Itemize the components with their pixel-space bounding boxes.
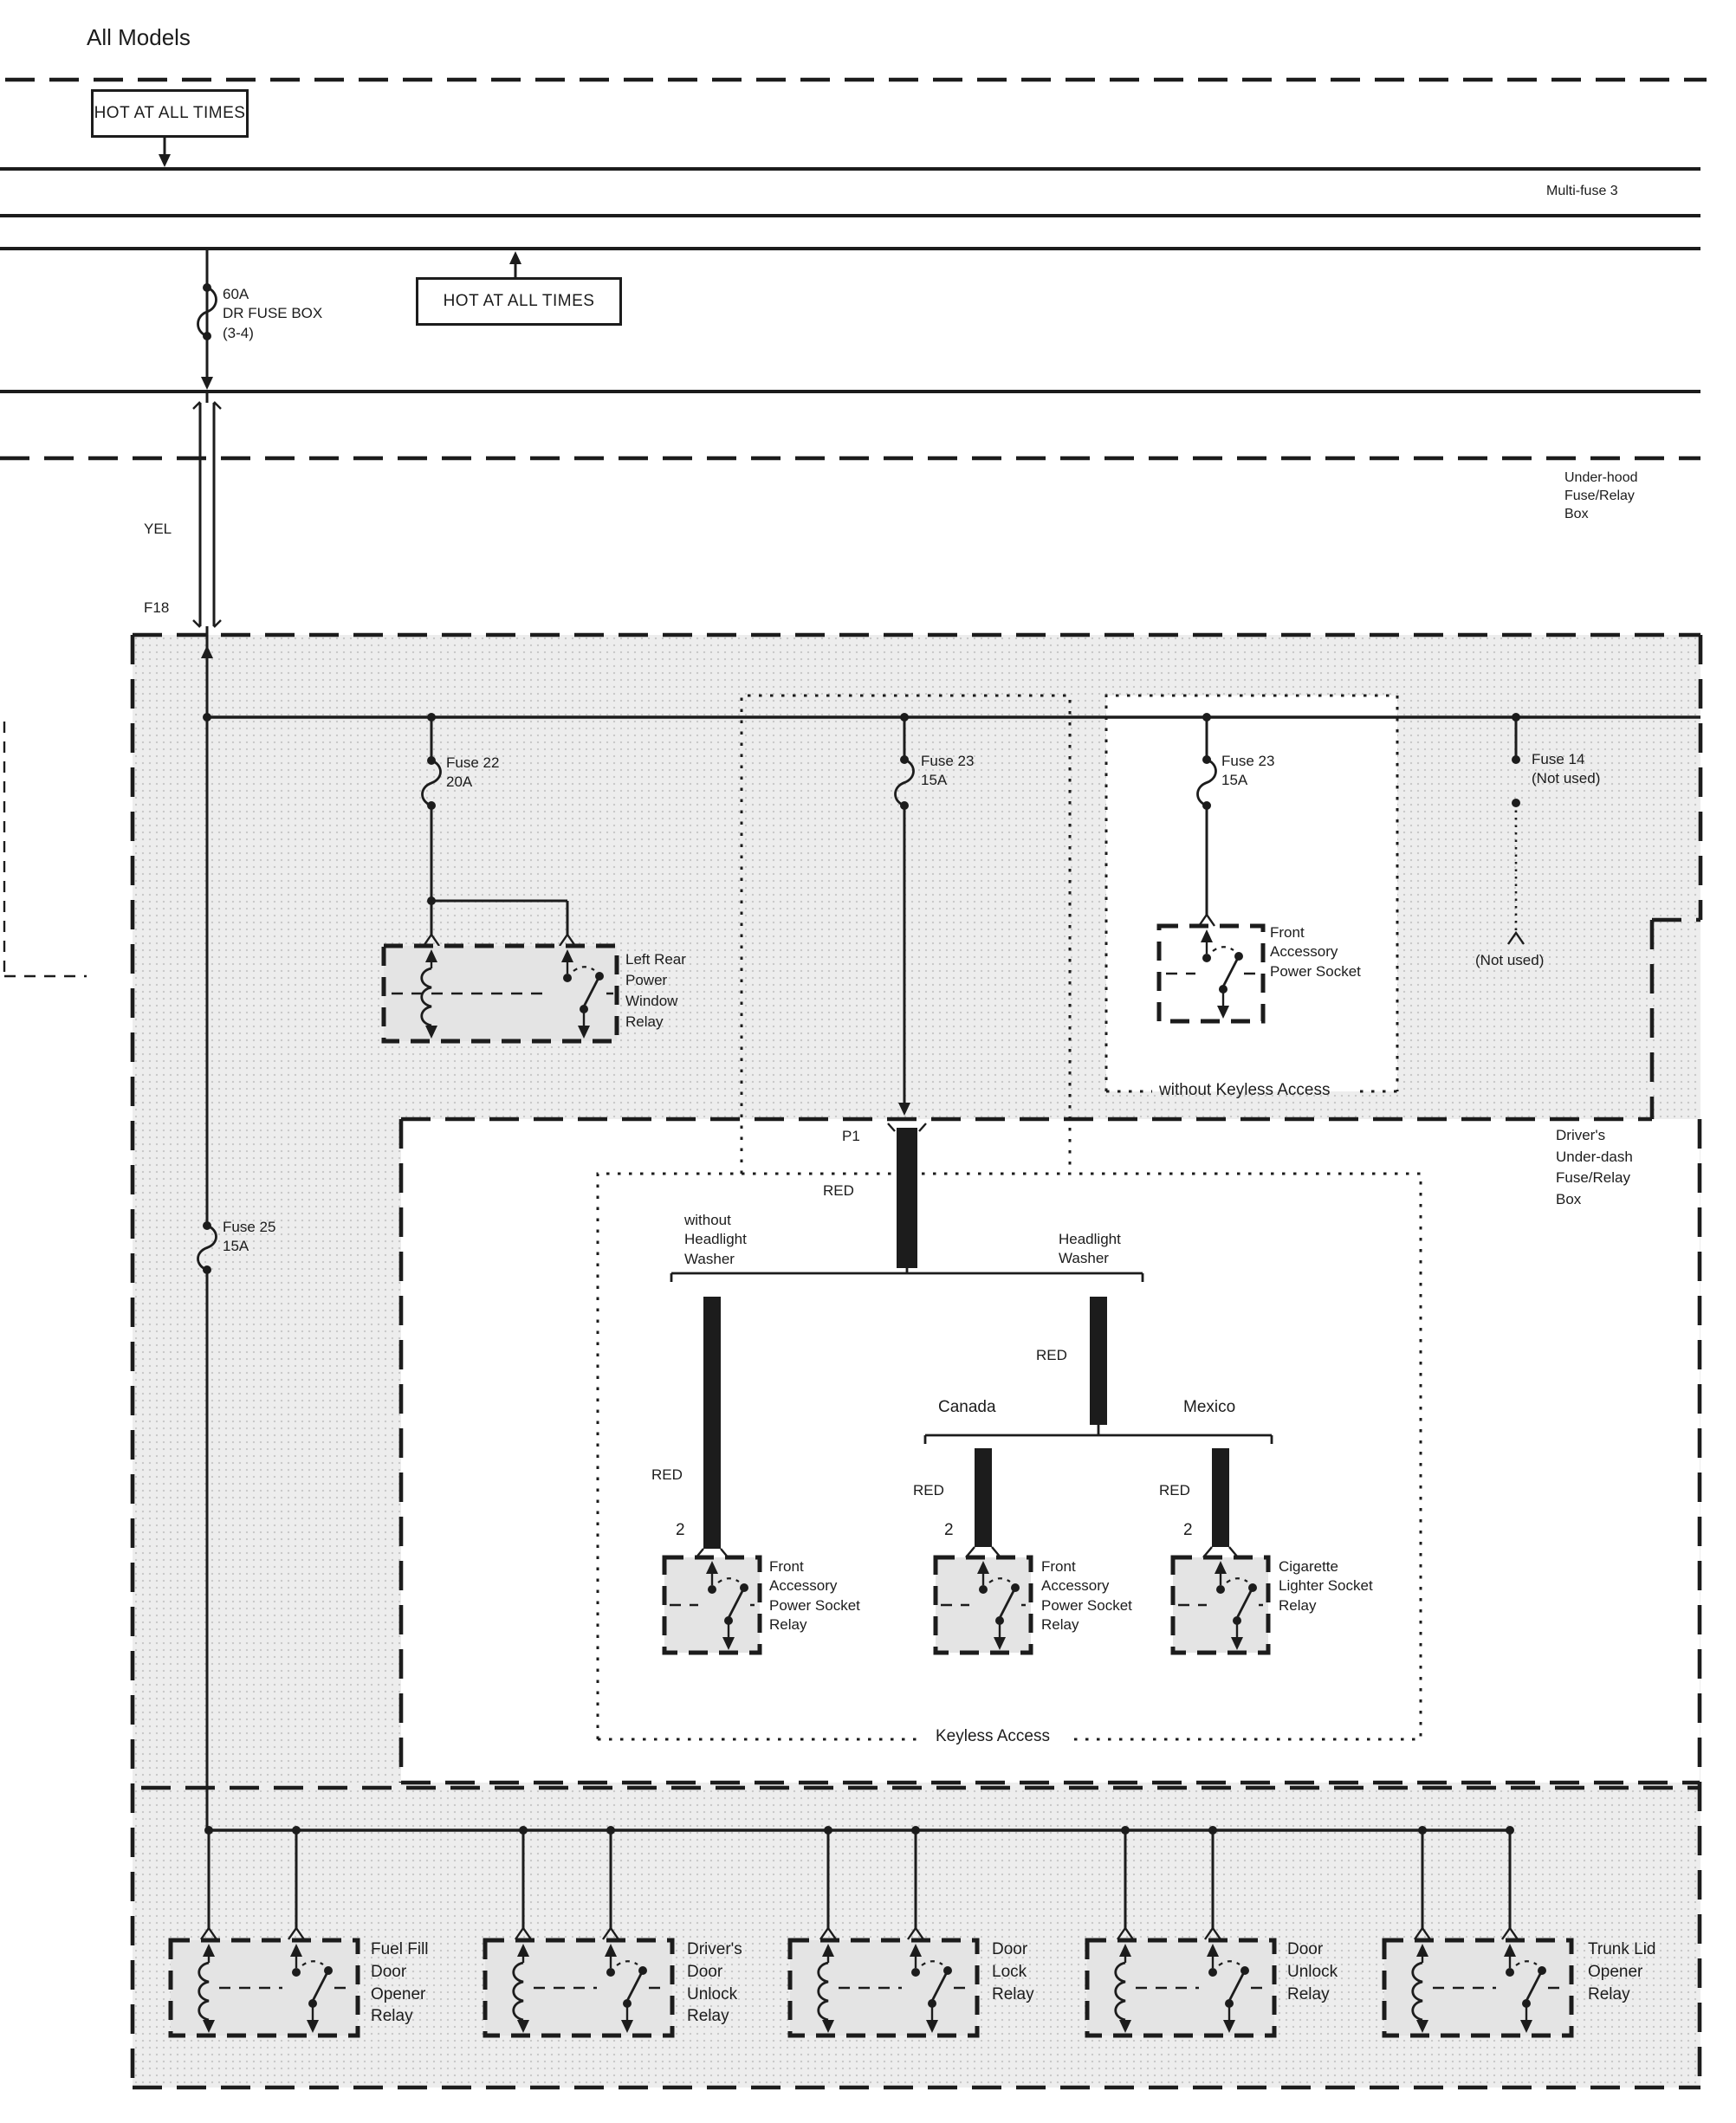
fuse25-label: Fuse 25 15A [223,1218,275,1257]
relay-a-label: Front Accessory Power Socket Relay [769,1557,860,1635]
headlight-washer-label: Headlight Washer [1059,1230,1121,1269]
door-lock-relay [790,1940,977,2036]
drivers-door-unlock-relay [485,1940,672,2036]
left-rear-power-window-relay [384,946,617,1041]
relay-b-label: Front Accessory Power Socket Relay [1041,1557,1132,1635]
pin2-label-b: 2 [944,1519,954,1542]
wiring-diagram-page: All Models HOT AT ALL TIMES HOT AT ALL T… [0,0,1736,2123]
pin2-label-a: 2 [676,1519,685,1542]
without-headlight-washer-label: without Headlight Washer [684,1211,747,1269]
fuel-fill-door-opener-relay [171,1940,358,2036]
power-bus-rules [0,80,1707,976]
fuse14-not-used: (Not used) [1475,951,1544,970]
front-accessory-power-socket-relay-1 [664,1557,760,1653]
canada-label: Canada [938,1396,996,1419]
left-rear-relay-label: Left Rear Power Window Relay [625,949,686,1033]
trunk-lid-opener-relay [1384,1940,1571,2036]
cigarette-lighter-socket-relay [1173,1557,1268,1653]
keyless-access-label: Keyless Access [936,1725,1050,1748]
red-label-p1: RED [823,1181,854,1201]
bottom-relay1-label: Fuel Fill Door Opener Relay [371,1939,429,2028]
front-accessory-power-socket-relay-2 [936,1557,1031,1653]
connector-chevrons [201,915,1518,1939]
red-label-left-bar: RED [651,1466,683,1485]
fuse23-right-label: Fuse 23 15A [1221,752,1274,791]
red-label-hw-bar: RED [1036,1346,1067,1365]
hot-at-all-times-box-2: HOT AT ALL TIMES [416,277,622,326]
fuse22-label: Fuse 22 20A [446,754,499,793]
multi-fuse-label: Multi-fuse 3 [1546,182,1618,200]
front-accessory-power-socket [1159,926,1263,1021]
bottom-relay5-label: Trunk Lid Opener Relay [1588,1939,1656,2005]
fuse-symbols [198,283,1521,1274]
red-label-canada: RED [913,1481,944,1500]
underdash-box-label: Driver's Under-dash Fuse/Relay Box [1556,1125,1633,1211]
bottom-relay4-label: Door Unlock Relay [1287,1939,1338,2005]
bottom-relay2-label: Driver's Door Unlock Relay [687,1939,742,2028]
without-keyless-label: without Keyless Access [1159,1079,1330,1102]
hot-label-1: HOT AT ALL TIMES [94,104,246,123]
underhood-box-label: Under-hood Fuse/Relay Box [1564,469,1638,523]
connector-f18: F18 [144,599,169,618]
mexico-label: Mexico [1183,1396,1235,1419]
f18-connector [193,402,221,627]
p1-label: P1 [842,1127,860,1146]
relay-c-label: Cigarette Lighter Socket Relay [1279,1557,1373,1615]
page-title: All Models [87,23,191,52]
fuse23-mid-label: Fuse 23 15A [921,752,974,791]
main-fuse-label: 60A DR FUSE BOX (3-4) [223,285,322,343]
hot-label-2: HOT AT ALL TIMES [444,292,595,311]
hot-at-all-times-box-1: HOT AT ALL TIMES [91,89,249,138]
door-unlock-relay [1087,1940,1274,2036]
pin2-label-c: 2 [1183,1519,1193,1542]
socket-label: Front Accessory Power Socket [1270,923,1361,981]
fuse14-label: Fuse 14 (Not used) [1532,750,1600,789]
bottom-relay3-label: Door Lock Relay [992,1939,1034,2005]
red-label-mexico: RED [1159,1481,1190,1500]
wire-color-yel: YEL [144,520,172,539]
